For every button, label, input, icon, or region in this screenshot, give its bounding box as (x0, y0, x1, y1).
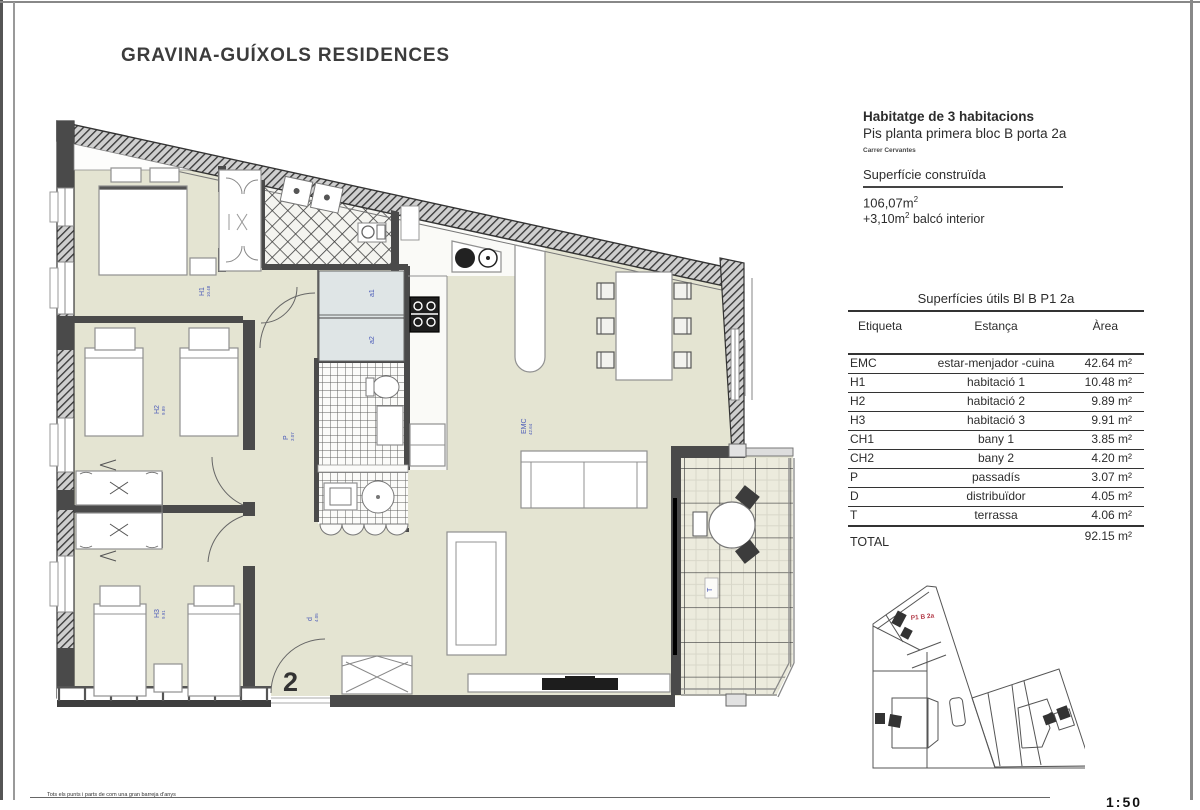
svg-text:d: d (307, 617, 314, 621)
svg-text:4.05: 4.05 (314, 613, 319, 622)
svg-text:H3: H3 (154, 609, 161, 618)
svg-text:P: P (283, 435, 290, 440)
svg-text:EMC: EMC (521, 418, 528, 434)
svg-text:T: T (707, 587, 714, 592)
svg-text:H1: H1 (199, 287, 206, 296)
svg-text:H2: H2 (154, 405, 161, 414)
svg-text:3.07: 3.07 (290, 432, 295, 441)
svg-text:a2: a2 (369, 336, 376, 344)
svg-text:42.64: 42.64 (528, 423, 533, 435)
svg-text:9.91: 9.91 (161, 610, 166, 619)
svg-text:2: 2 (283, 667, 298, 697)
svg-text:10.48: 10.48 (206, 285, 211, 297)
svg-text:9.89: 9.89 (161, 406, 166, 415)
svg-text:P1 B 2a: P1 B 2a (910, 613, 934, 622)
svg-text:a1: a1 (369, 289, 376, 297)
